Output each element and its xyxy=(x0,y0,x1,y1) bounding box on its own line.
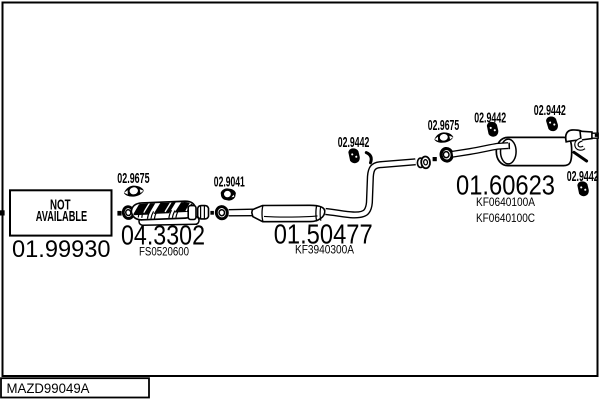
svg-text:KF0640100C: KF0640100C xyxy=(476,211,535,225)
svg-text:AVAILABLE: AVAILABLE xyxy=(36,209,87,225)
svg-text:02.9675: 02.9675 xyxy=(117,171,149,187)
svg-text:02.9041: 02.9041 xyxy=(214,175,245,191)
svg-text:02.9675: 02.9675 xyxy=(428,118,459,134)
svg-text:MAZD99049A: MAZD99049A xyxy=(7,380,91,396)
svg-text:FS0520600: FS0520600 xyxy=(139,245,189,259)
svg-text:KF0640100A: KF0640100A xyxy=(476,195,536,209)
svg-text:01.99930: 01.99930 xyxy=(12,236,111,263)
svg-text:KF3940300A: KF3940300A xyxy=(295,242,355,256)
